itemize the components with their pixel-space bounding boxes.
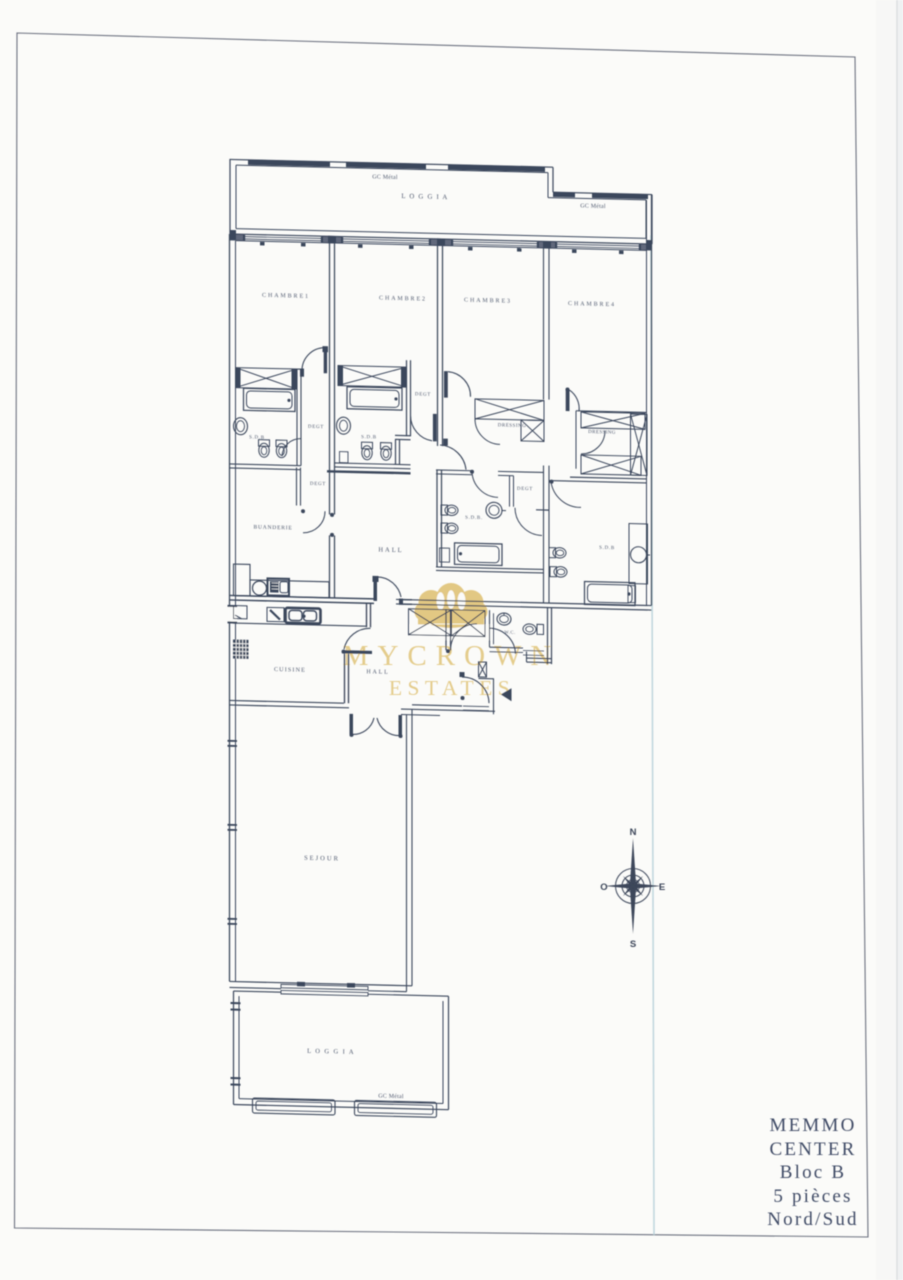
svg-text:5 pièces: 5 pièces [773,1186,852,1207]
svg-text:Nord/Sud: Nord/Sud [767,1209,859,1230]
svg-text:BUANDERIE: BUANDERIE [254,525,293,532]
svg-text:CHAMBRE4: CHAMBRE4 [568,301,616,308]
svg-text:CHAMBRE2: CHAMBRE2 [379,296,427,303]
svg-text:W.C.: W.C. [504,630,515,635]
svg-text:S.D.B.: S.D.B. [465,516,483,521]
svg-text:CUISINE: CUISINE [274,667,306,674]
svg-text:SEJOUR: SEJOUR [304,855,340,863]
svg-text:DRESSING: DRESSING [588,430,616,436]
svg-text:S: S [630,939,636,950]
svg-text:CENTER: CENTER [769,1139,856,1160]
svg-text:S.D.B: S.D.B [361,435,377,440]
svg-text:L O G G I A: L O G G I A [307,1048,355,1056]
svg-text:ESTATES: ESTATES [389,676,515,700]
svg-text:L O G G I A: L O G G I A [401,193,448,201]
svg-text:N: N [630,827,637,838]
svg-text:GC Métal: GC Métal [580,203,606,210]
svg-text:DEGT: DEGT [415,392,431,397]
svg-text:DRESSING: DRESSING [498,423,526,429]
svg-text:S.D.B: S.D.B [599,546,615,551]
svg-text:GC Métal: GC Métal [378,1094,404,1101]
svg-text:DEGT: DEGT [517,487,533,492]
svg-text:CHAMBRE3: CHAMBRE3 [464,298,512,305]
svg-text:DEGT: DEGT [308,425,324,430]
svg-text:Bloc B: Bloc B [780,1162,847,1183]
svg-text:DEGT: DEGT [310,482,326,487]
svg-text:E: E [659,882,665,893]
svg-text:MEMMO: MEMMO [769,1115,856,1136]
svg-text:CHAMBRE1: CHAMBRE1 [262,293,310,300]
svg-text:O: O [600,882,607,893]
svg-text:HALL: HALL [378,547,403,555]
svg-text:GC Métal: GC Métal [372,174,398,181]
svg-text:HALL: HALL [366,669,389,676]
